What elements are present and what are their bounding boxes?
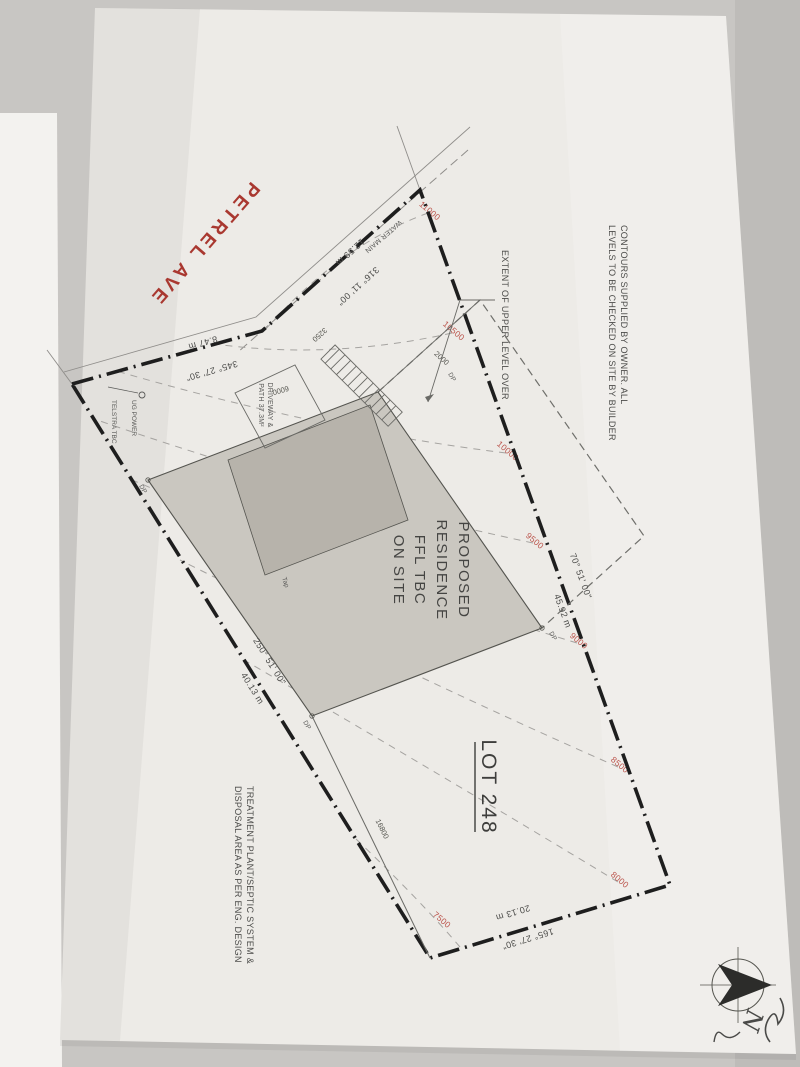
residence-line1: PROPOSED: [455, 521, 472, 618]
site-plan-drawing: WATER MAIN 11000 10500 10000 9500 9000 8…: [0, 0, 800, 1067]
residence-line3: FFL TBC: [411, 535, 428, 606]
residence-line4: ON SITE: [390, 535, 407, 606]
underlying-sheet: [0, 113, 62, 1067]
residence-line2: RESIDENCE: [433, 519, 450, 620]
scanned-site-plan-photo: WATER MAIN 11000 10500 10000 9500 9000 8…: [0, 0, 800, 1067]
extent-upper-note: EXTENT OF UPPER LEVEL OVER: [500, 250, 510, 400]
treatment-note-line1: TREATMENT PLANT/SEPTIC SYSTEM &: [245, 786, 255, 964]
ug-power-label: UG POWER: [130, 400, 137, 436]
contours-note-line2: LEVELS TO BE CHECKED ON SITE BY BUILDER: [607, 225, 617, 441]
telstra-label: TELSTRA TBC: [110, 400, 117, 444]
contours-note-line1: CONTOURS SUPPLIED BY OWNER. ALL: [619, 225, 629, 405]
lot-number: LOT 248: [477, 739, 500, 834]
driveway-label-line2: PATH 37.3M²: [257, 383, 264, 427]
treatment-note-line2: DISPOSAL AREA AS PER ENG. DESIGN: [233, 786, 243, 963]
